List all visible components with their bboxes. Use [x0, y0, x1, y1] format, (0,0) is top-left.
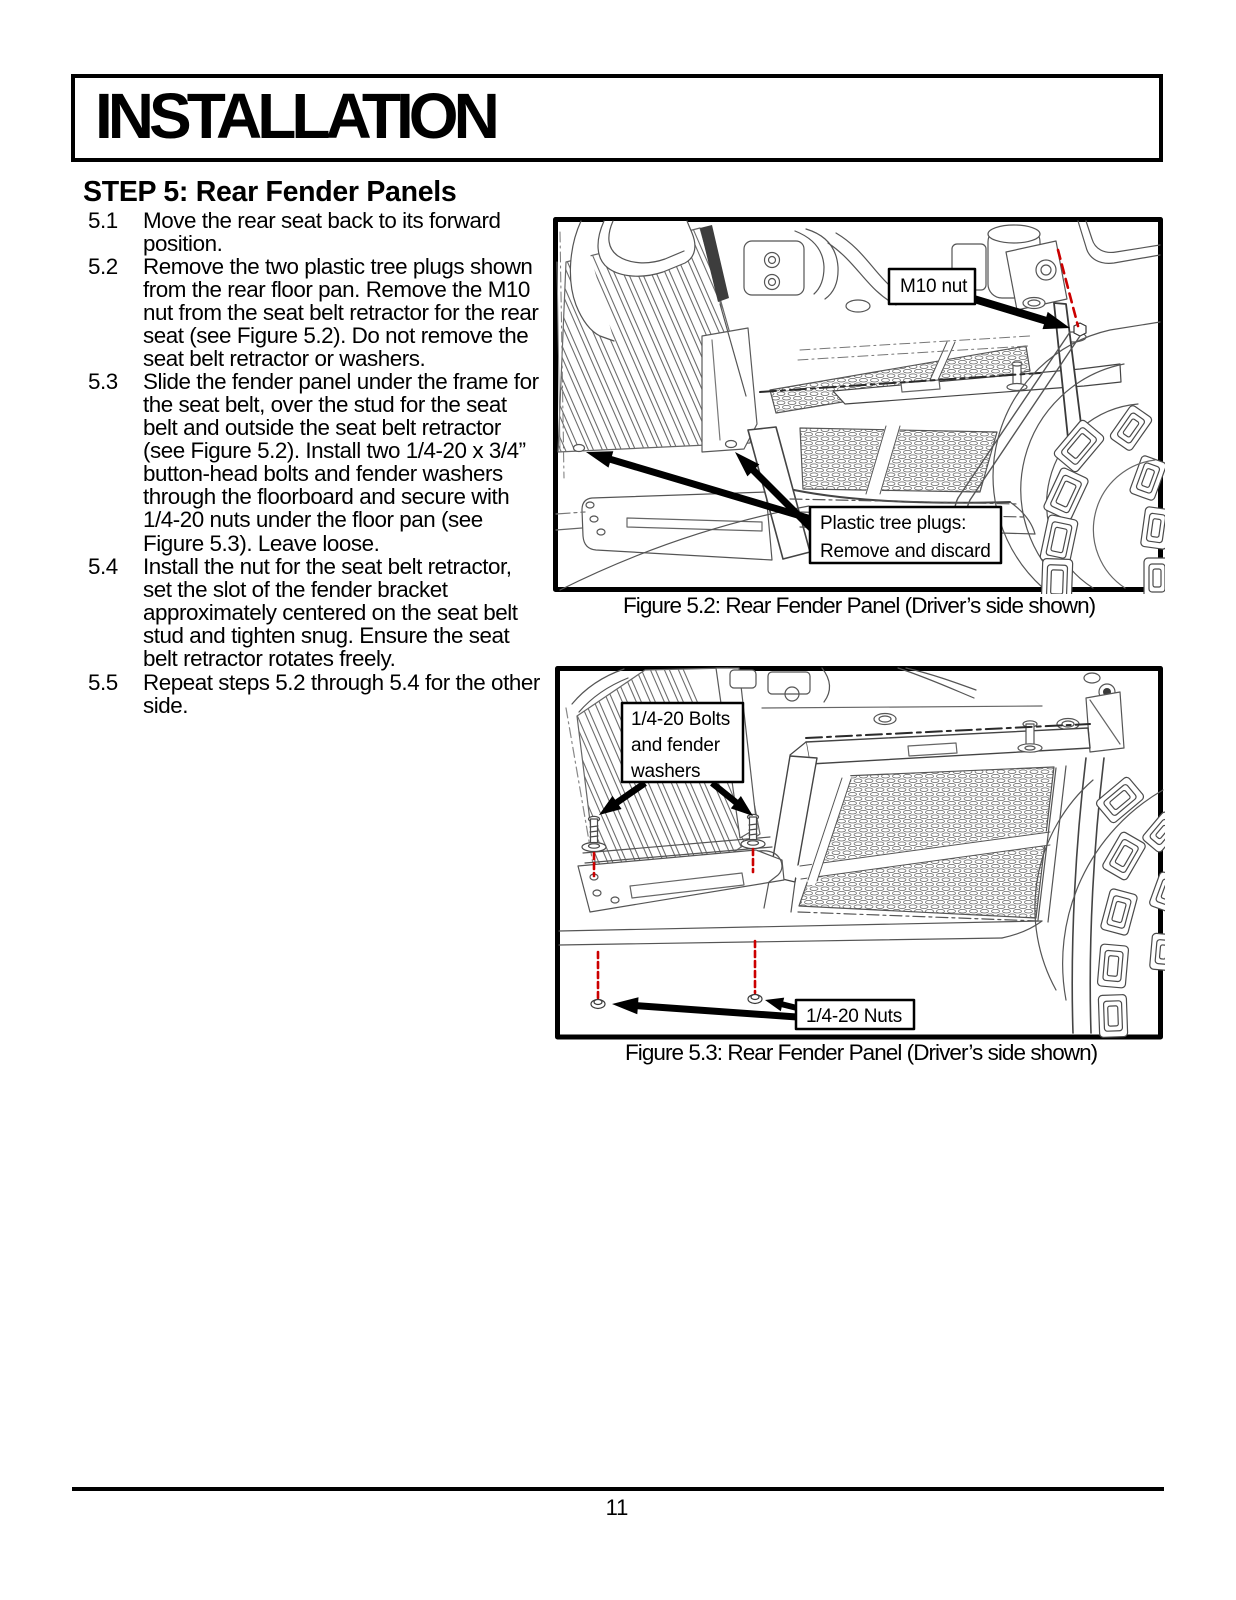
svg-text:washers: washers — [630, 761, 700, 782]
svg-text:1/4-20 Nuts: 1/4-20 Nuts — [806, 1006, 902, 1027]
svg-text:Remove and discard: Remove and discard — [820, 541, 991, 562]
svg-text:and fender: and fender — [631, 735, 721, 756]
svg-text:Plastic tree plugs:: Plastic tree plugs: — [820, 513, 966, 534]
svg-text:1/4-20 Bolts: 1/4-20 Bolts — [631, 709, 730, 730]
svg-text:M10 nut: M10 nut — [900, 276, 968, 297]
